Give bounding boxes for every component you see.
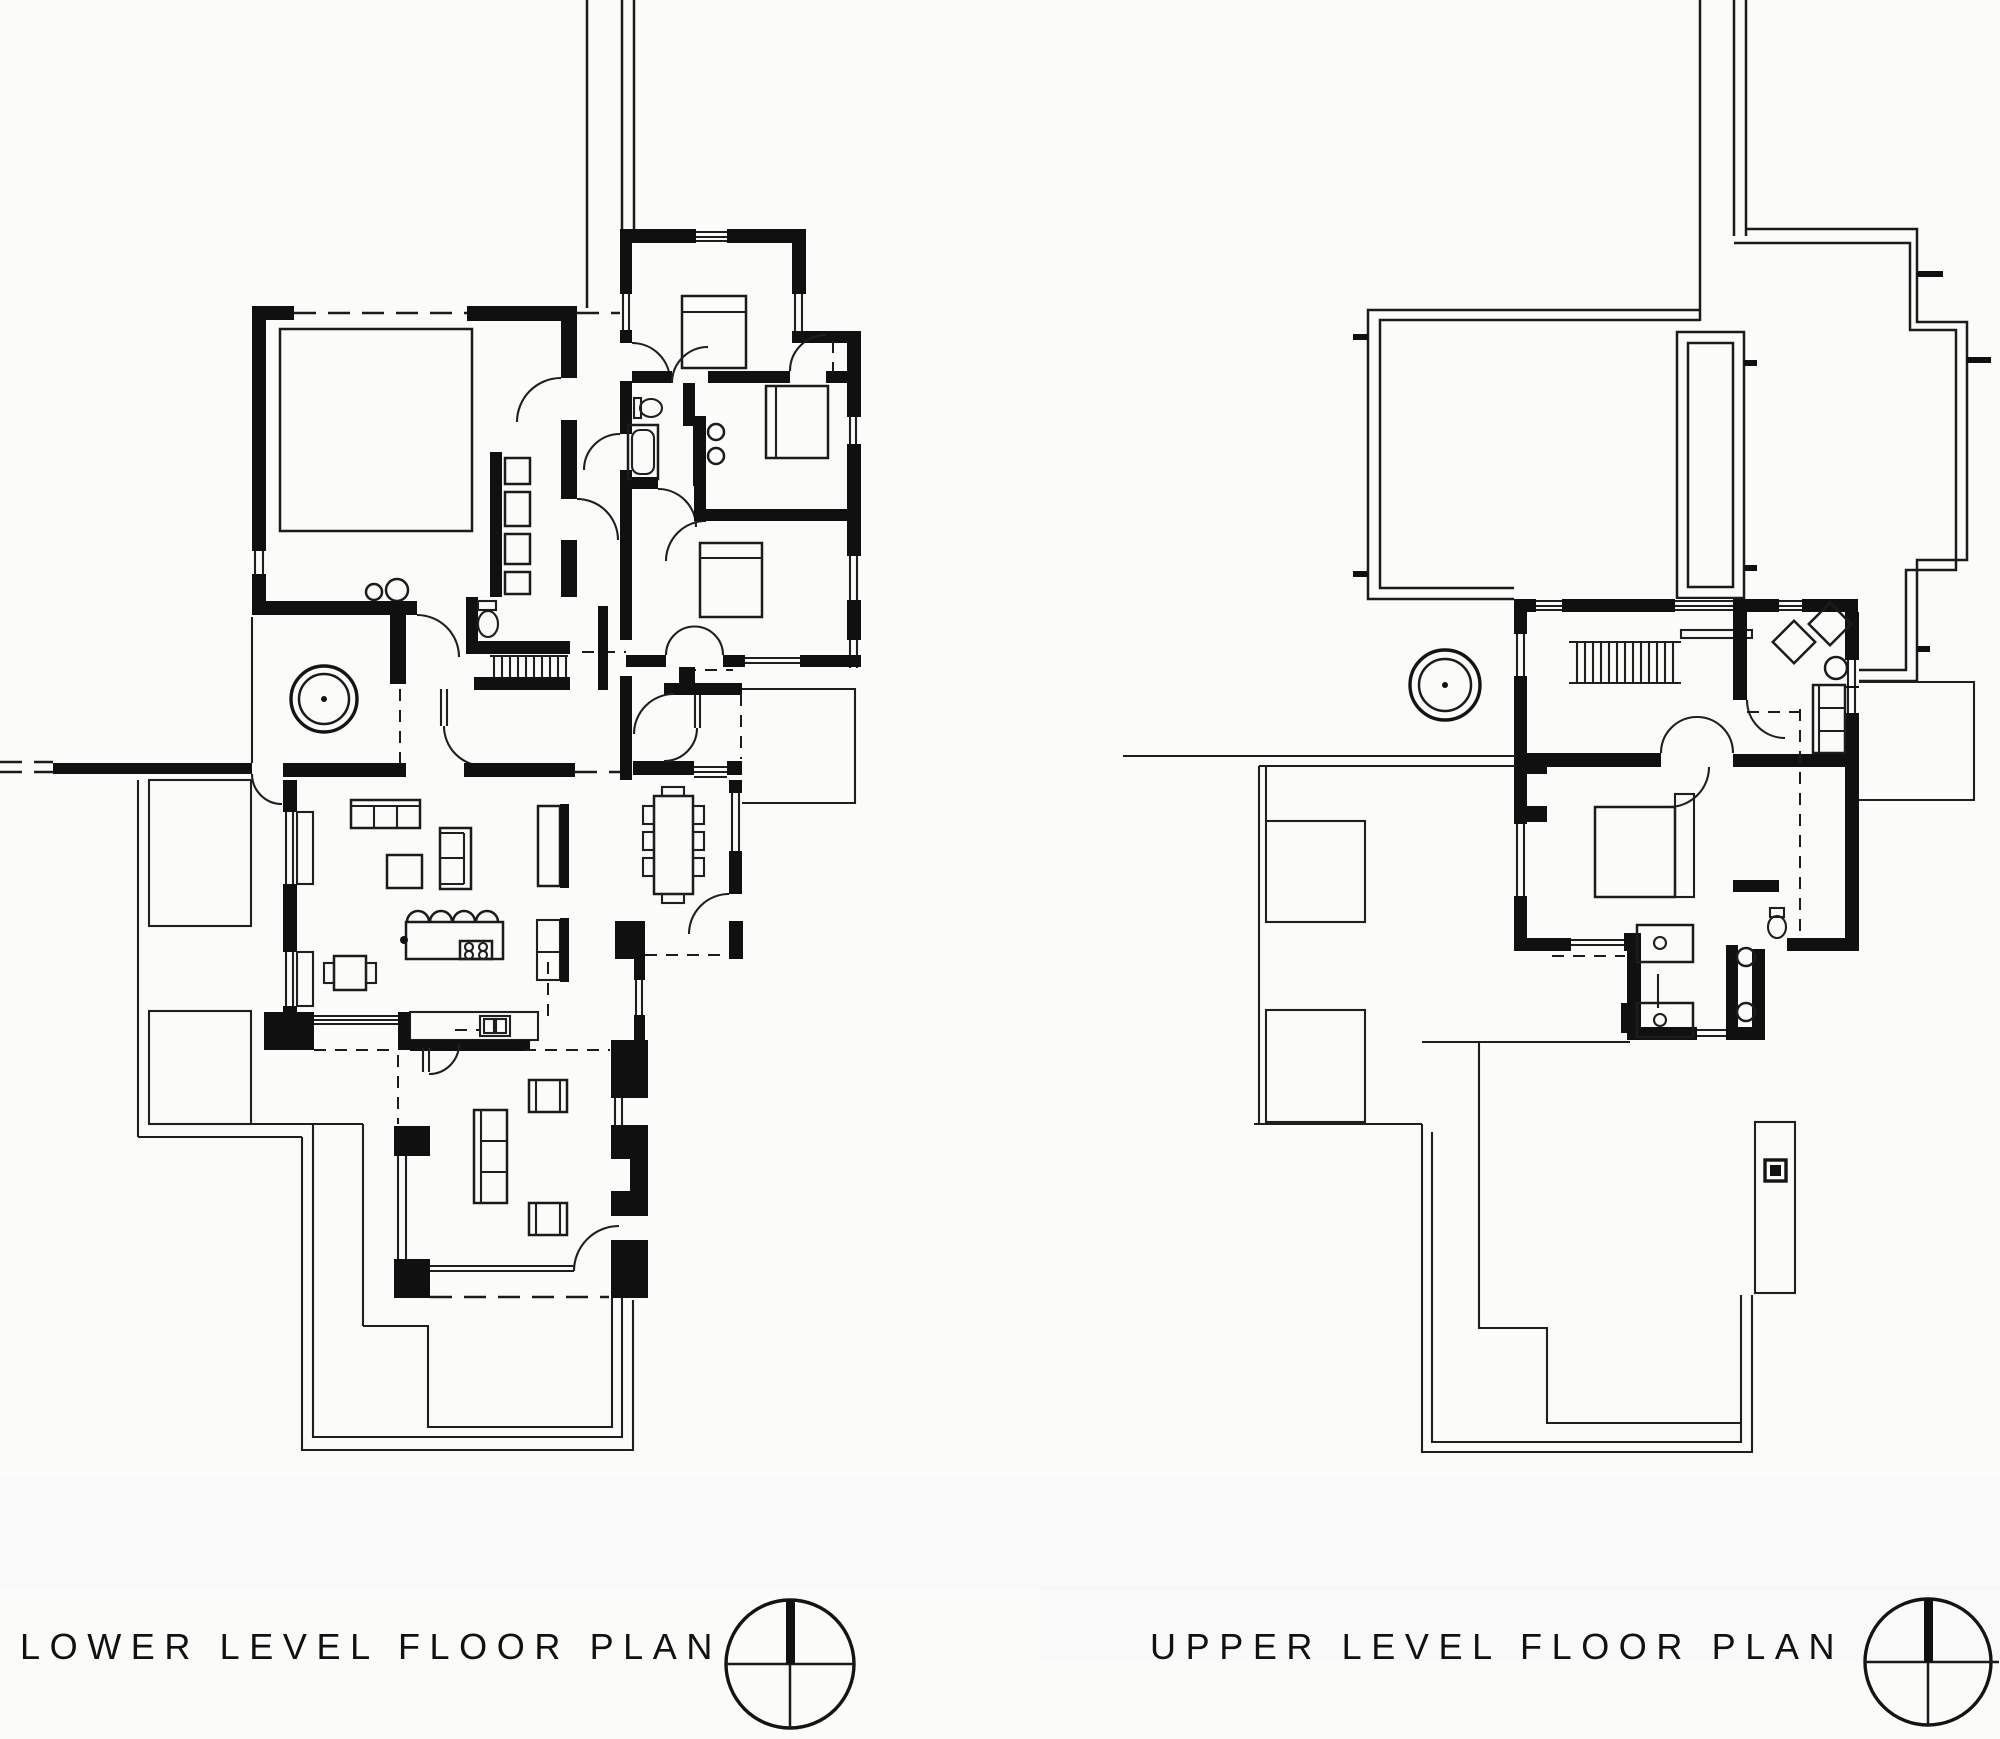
svg-text:LOWER LEVEL FLOOR PLAN: LOWER LEVEL FLOOR PLAN	[20, 1626, 722, 1667]
svg-text:UPPER LEVEL FLOOR PLAN: UPPER LEVEL FLOOR PLAN	[1150, 1626, 1844, 1667]
